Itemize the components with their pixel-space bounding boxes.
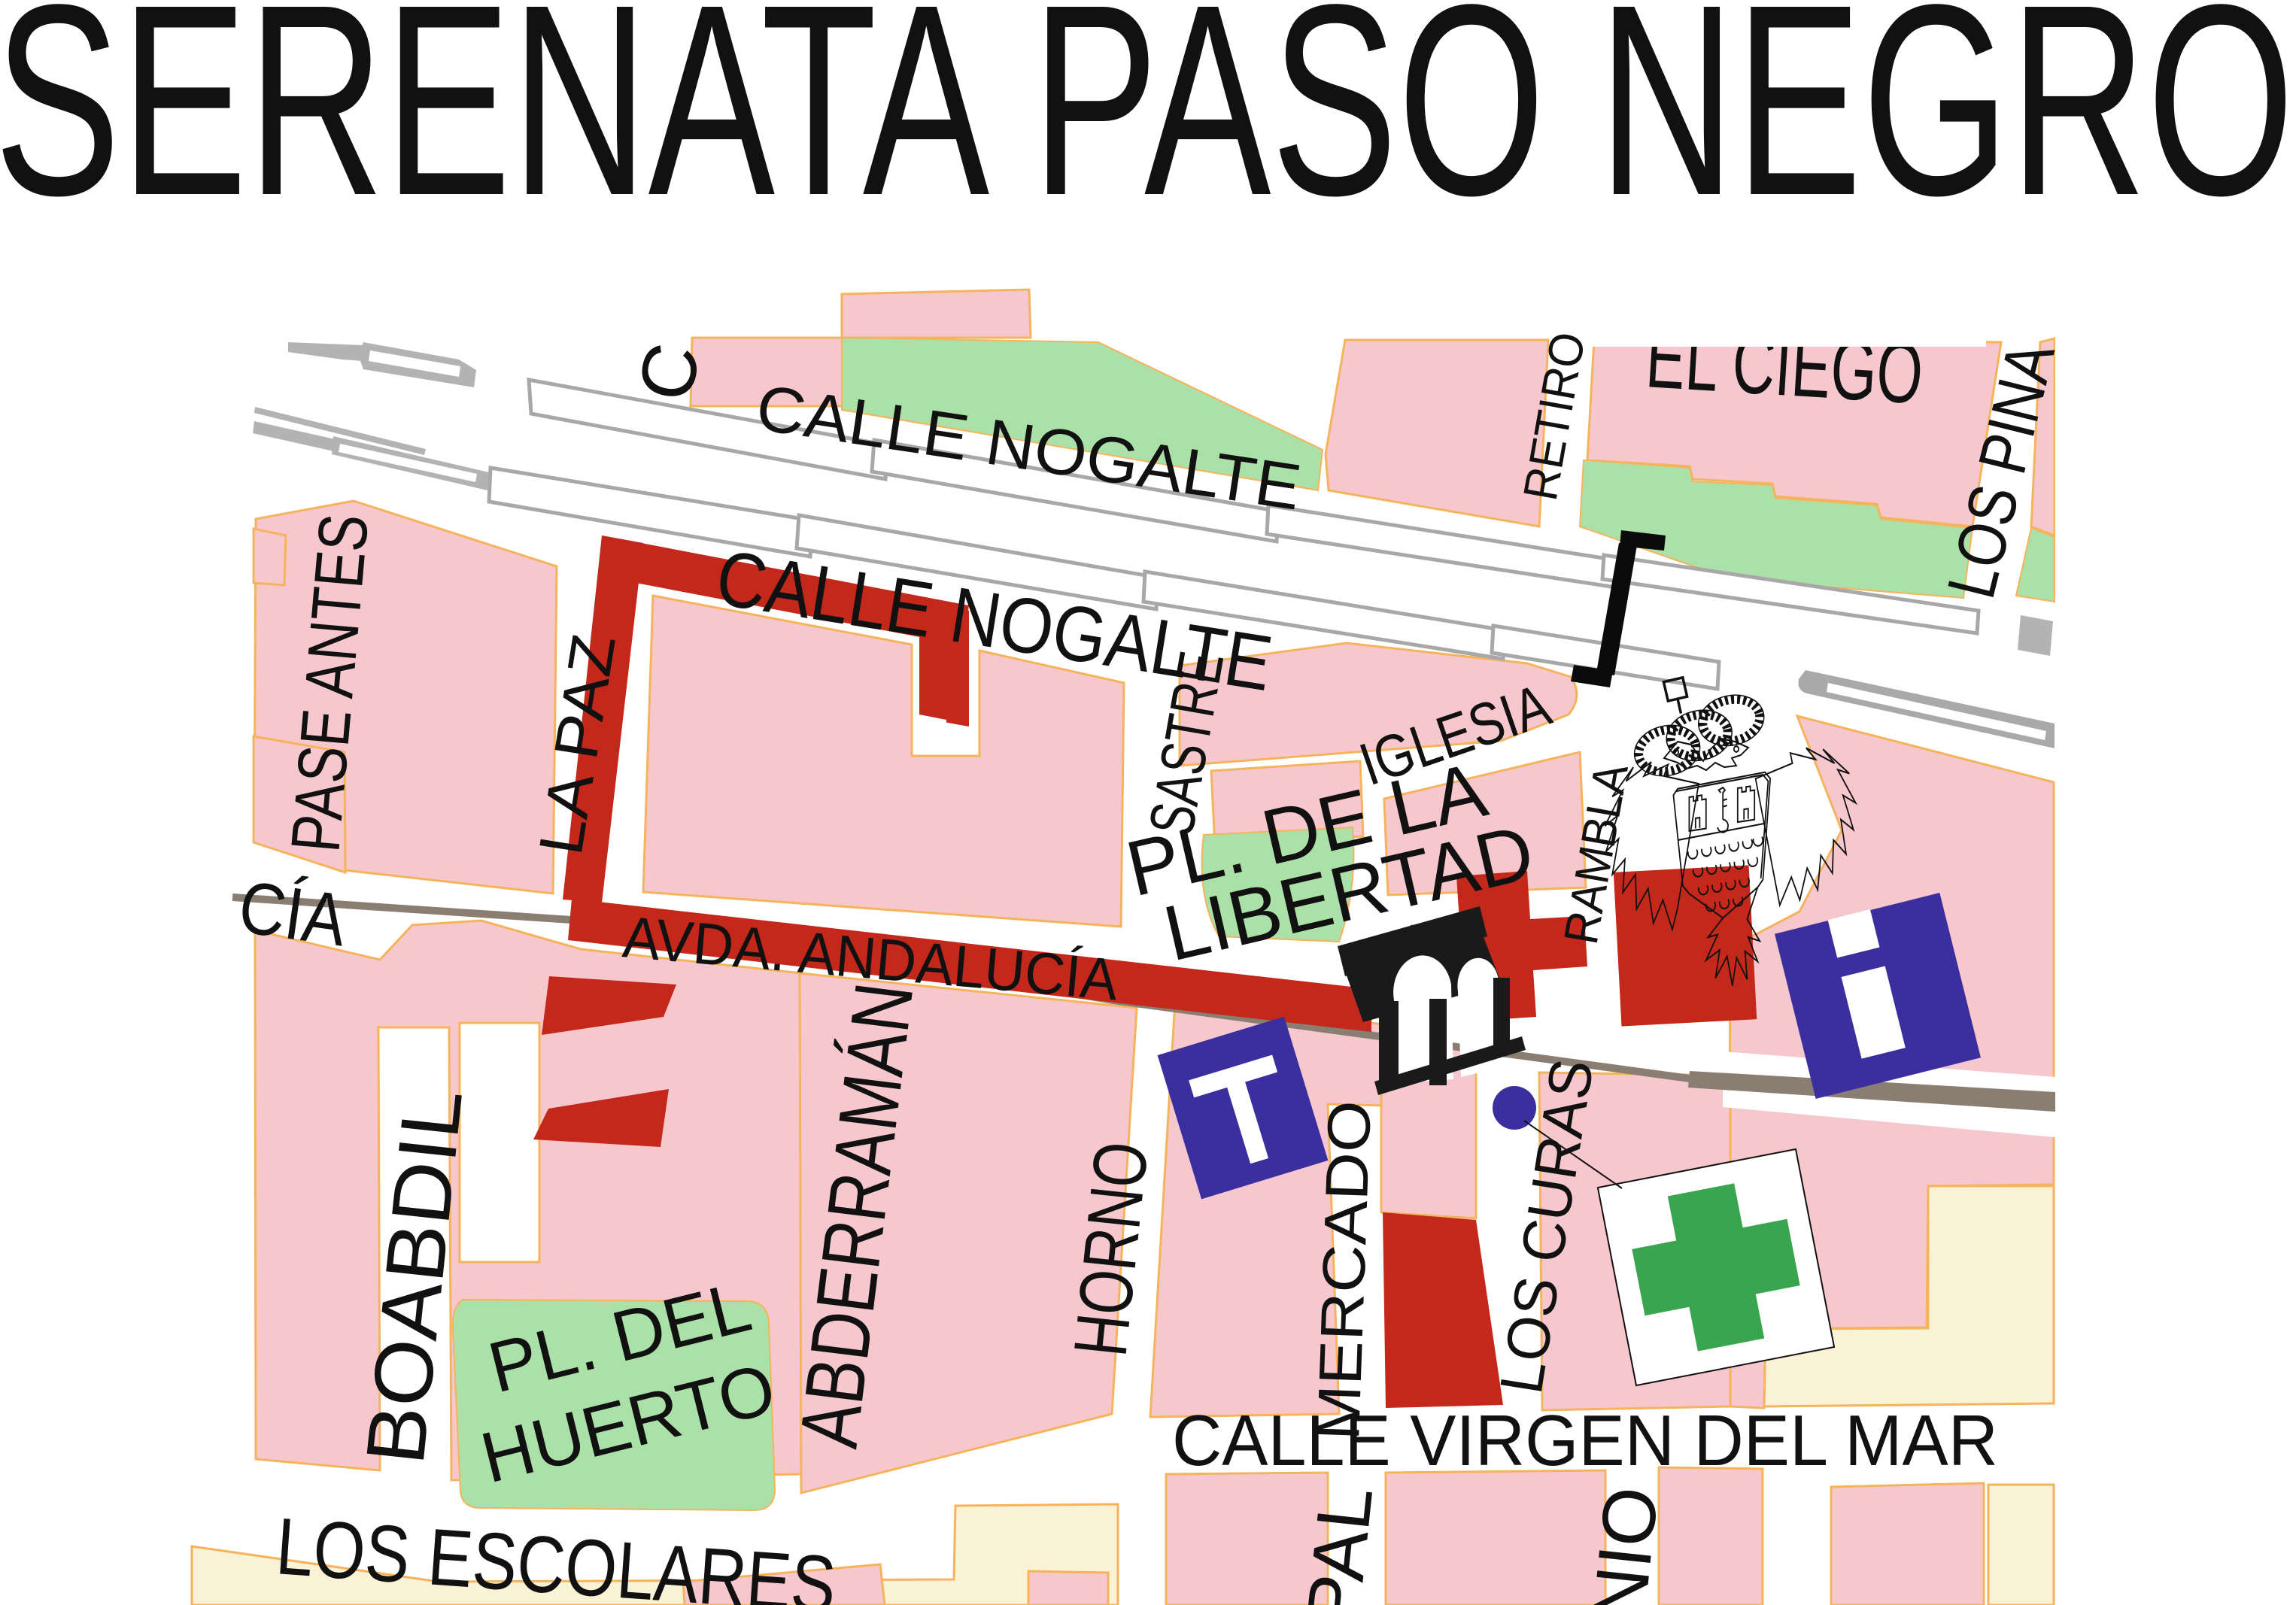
- svg-text:MERCADO: MERCADO: [1304, 1100, 1383, 1442]
- svg-text:CÍA: CÍA: [234, 865, 351, 962]
- svg-text:PAL: PAL: [1290, 1483, 1389, 1605]
- svg-text:SERENATA PASO NEGRO: SERENATA PASO NEGRO: [0, 0, 2294, 252]
- svg-text:NIO: NIO: [1576, 1483, 1674, 1605]
- svg-text:CALLE VIRGEN DEL MAR: CALLE VIRGEN DEL MAR: [1172, 1400, 1998, 1481]
